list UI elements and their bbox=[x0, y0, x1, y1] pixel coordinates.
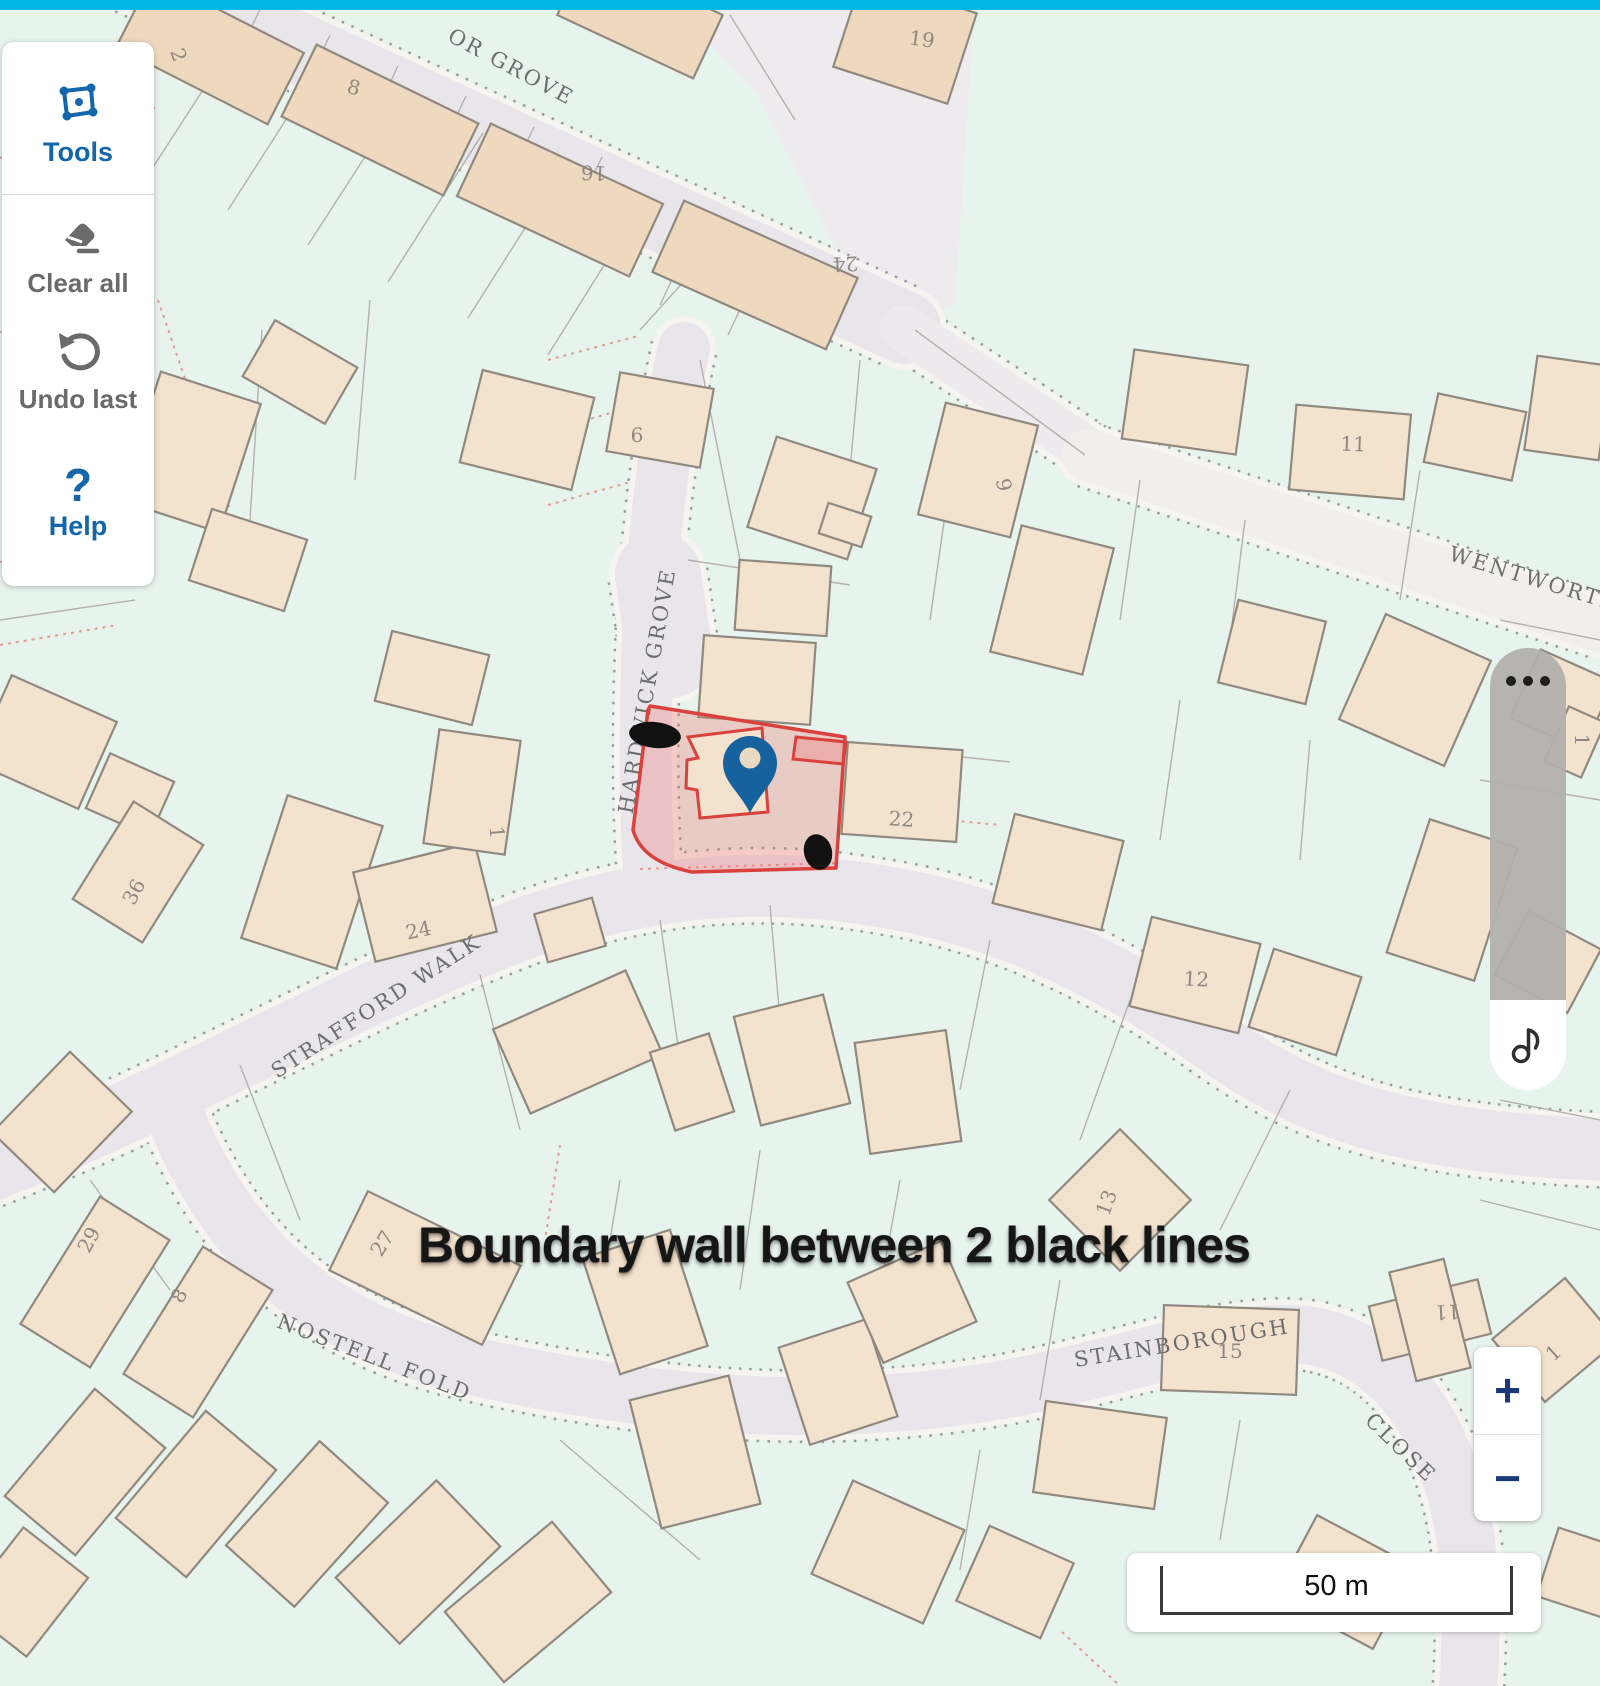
annotation-text: Boundary wall between 2 black lines bbox=[418, 1216, 1250, 1274]
building bbox=[375, 631, 489, 725]
parcel-line-red bbox=[1062, 1632, 1120, 1686]
building bbox=[189, 509, 307, 611]
house-number: 11 bbox=[1340, 432, 1366, 457]
scale-bar: 50 m bbox=[1127, 1553, 1541, 1632]
house-number: 15 bbox=[1217, 1339, 1242, 1363]
parcel-line bbox=[1220, 1090, 1290, 1230]
building bbox=[1424, 393, 1527, 480]
parcel-line bbox=[0, 600, 135, 620]
parcel-line bbox=[1220, 1420, 1240, 1540]
tools-button[interactable]: Tools bbox=[43, 80, 113, 168]
building bbox=[698, 635, 815, 725]
building bbox=[460, 370, 595, 490]
building bbox=[812, 1481, 965, 1624]
house-number: 24 bbox=[832, 251, 859, 276]
building bbox=[493, 970, 663, 1113]
map-app: OR GROVEHARDWICK GROVEWENTWORTHSTRAFFORD… bbox=[0, 0, 1600, 1686]
zoom-control: + − bbox=[1474, 1347, 1541, 1521]
clear-all-button[interactable]: Clear all bbox=[27, 213, 128, 299]
more-options-icon[interactable] bbox=[1490, 676, 1566, 686]
eraser-icon bbox=[53, 213, 103, 262]
undo-icon bbox=[53, 327, 103, 378]
house-number: 6 bbox=[631, 423, 644, 447]
help-label: Help bbox=[49, 511, 108, 542]
building bbox=[606, 372, 713, 467]
music-note-icon bbox=[1510, 1022, 1546, 1069]
question-mark-icon: ? bbox=[64, 465, 92, 505]
parcel-line-red bbox=[0, 625, 118, 645]
building bbox=[734, 995, 850, 1126]
undo-last-label: Undo last bbox=[19, 384, 137, 415]
building bbox=[855, 1030, 962, 1154]
building bbox=[650, 1033, 734, 1130]
house-number: 12 bbox=[1183, 966, 1210, 991]
undo-last-button[interactable]: Undo last bbox=[19, 327, 137, 415]
parcel-line bbox=[1300, 740, 1310, 860]
parcel-line bbox=[1160, 700, 1180, 840]
parcel-line bbox=[850, 360, 860, 470]
building bbox=[1218, 600, 1326, 704]
building bbox=[990, 525, 1114, 674]
building bbox=[918, 403, 1038, 538]
zoom-in-button[interactable]: + bbox=[1474, 1347, 1541, 1434]
parcel-line-red bbox=[548, 336, 638, 360]
scale-label: 50 m bbox=[1304, 1570, 1368, 1609]
side-scrollbar[interactable] bbox=[1490, 648, 1566, 1000]
scale-bracket: 50 m bbox=[1160, 1566, 1513, 1615]
house-number: 16 bbox=[580, 160, 607, 185]
house-number: 19 bbox=[908, 25, 937, 52]
house-number: 11 bbox=[1434, 1299, 1461, 1324]
building bbox=[1339, 614, 1491, 766]
building bbox=[557, 0, 723, 78]
map-pin-hole bbox=[740, 748, 761, 769]
building bbox=[735, 560, 832, 636]
building bbox=[1536, 1528, 1600, 1623]
building bbox=[1033, 1401, 1167, 1509]
building bbox=[1524, 356, 1600, 461]
house-number: 22 bbox=[888, 806, 915, 832]
house-number: 1 bbox=[1570, 734, 1594, 747]
building bbox=[956, 1526, 1073, 1638]
parcel-line bbox=[355, 300, 370, 480]
building bbox=[1122, 349, 1248, 454]
clear-all-label: Clear all bbox=[27, 268, 128, 299]
parcel-line bbox=[960, 940, 990, 1090]
parcel-line bbox=[1480, 1200, 1600, 1230]
toolbar-divider bbox=[2, 194, 154, 195]
top-accent-bar bbox=[0, 0, 1600, 10]
audio-note-button[interactable] bbox=[1490, 1000, 1566, 1090]
house-number: 1 bbox=[484, 825, 509, 840]
tools-panel: Tools Clear all Undo last ? bbox=[2, 42, 154, 586]
highlight-outbuilding bbox=[793, 737, 846, 764]
help-button[interactable]: ? Help bbox=[49, 465, 108, 542]
parcel-line bbox=[660, 920, 680, 1060]
building bbox=[73, 802, 203, 943]
map-canvas[interactable]: OR GROVEHARDWICK GROVEWENTWORTHSTRAFFORD… bbox=[0, 0, 1600, 1686]
map-side-widget bbox=[1490, 648, 1566, 1090]
tools-label: Tools bbox=[43, 137, 113, 168]
polygon-tool-icon bbox=[54, 80, 102, 131]
parcel-line bbox=[1080, 1000, 1130, 1140]
zoom-out-button[interactable]: − bbox=[1474, 1435, 1541, 1522]
